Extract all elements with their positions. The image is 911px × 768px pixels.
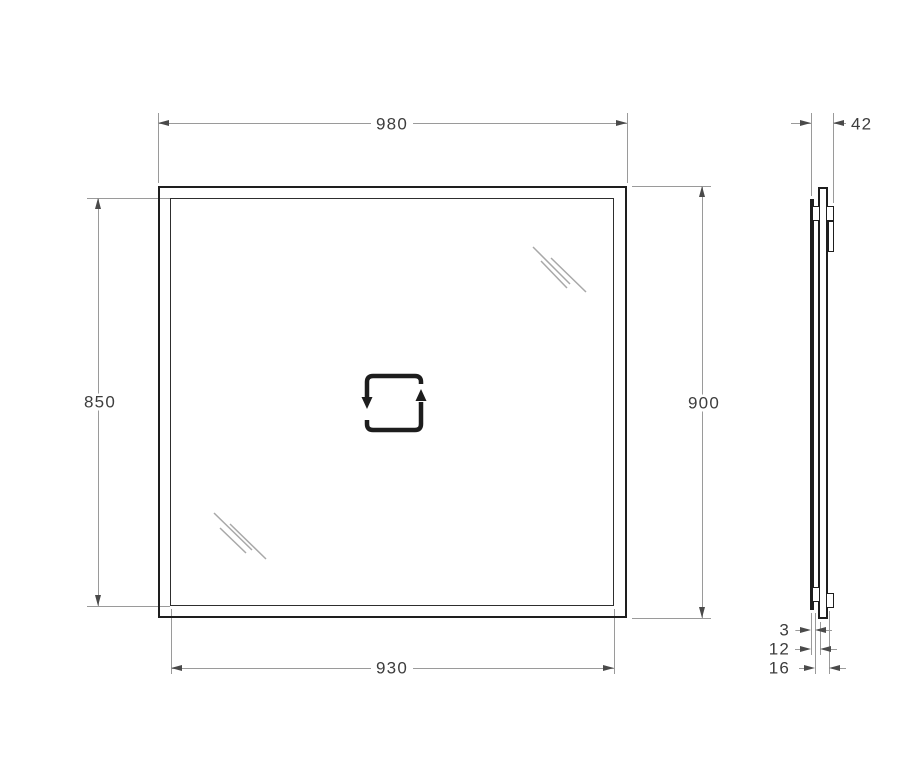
dim-label-inner-width: 930 [371, 660, 413, 677]
arrowhead-down-icon [699, 607, 705, 618]
bracket-top-left [812, 206, 820, 221]
arrowhead-up-icon [95, 198, 101, 209]
dim-label-outer-height: 900 [683, 395, 725, 412]
dim-label-total-depth: 42 [846, 116, 877, 133]
arrowhead-left-icon [820, 646, 831, 652]
dimension-tail [840, 668, 846, 669]
mirror-glass-profile [810, 199, 814, 610]
arrowhead-up-icon [699, 186, 705, 197]
arrowhead-down-icon [95, 595, 101, 606]
arrowhead-left-icon [158, 120, 169, 126]
arrowhead-right-icon [603, 665, 614, 671]
arrowhead-left-icon [815, 627, 826, 633]
extension-line [833, 113, 834, 203]
dim-label-inner-height: 850 [79, 394, 121, 411]
arrowhead-left-icon [829, 665, 840, 671]
extension-line [627, 113, 628, 183]
dim-label-glass-thickness: 3 [774, 622, 795, 639]
dim-label-bracket-depth: 16 [764, 660, 795, 677]
frame-profile [818, 187, 828, 619]
arrowhead-right-icon [800, 120, 811, 126]
glass-hatch-bottom-left-icon [210, 508, 270, 564]
arrowhead-right-icon [800, 646, 811, 652]
technical-drawing-canvas: 980 930 850 900 [0, 0, 911, 768]
extension-line [632, 618, 711, 619]
hanging-rail-top [828, 221, 834, 252]
rotation-arrows-icon [359, 368, 429, 438]
bracket-bottom-right [826, 593, 834, 608]
arrowhead-right-icon [804, 665, 815, 671]
extension-line [614, 609, 615, 674]
extension-line [815, 613, 816, 674]
bracket-bottom-left [812, 587, 820, 602]
dim-label-frame-depth: 12 [764, 641, 795, 658]
extension-line [811, 113, 812, 196]
arrowhead-right-icon [616, 120, 627, 126]
dimension-tail [831, 649, 837, 650]
bracket-top-right [826, 206, 834, 221]
arrowhead-left-icon [171, 665, 182, 671]
arrowhead-right-icon [800, 627, 811, 633]
arrowhead-left-icon [833, 120, 844, 126]
dim-label-outer-width: 980 [371, 116, 413, 133]
extension-line [811, 613, 812, 655]
glass-hatch-top-right-icon [528, 240, 592, 298]
